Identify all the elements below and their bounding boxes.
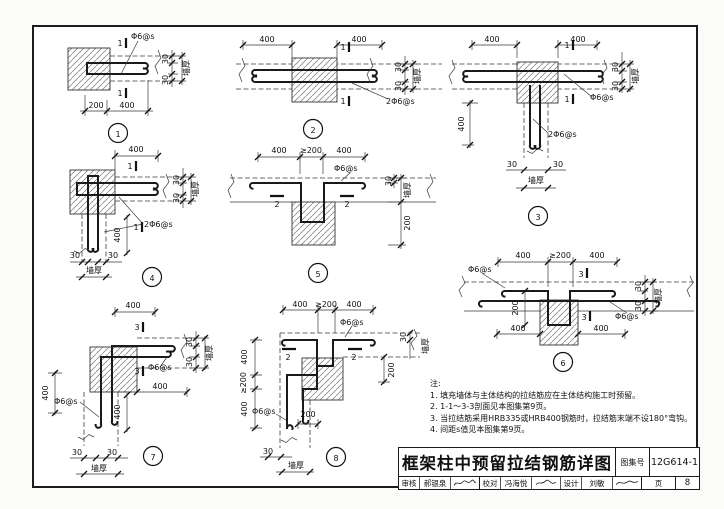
column-hatch	[90, 347, 137, 392]
reviewer-signature	[451, 477, 480, 489]
note-line: 4. 间距s值见本图集第9页。	[430, 424, 698, 436]
detail-6-drawing: 400 ≥200 400 Φ6@s Φ6@s 200 400 400 3 3 3…	[458, 248, 702, 372]
wall-thickness-label: 墙厚	[653, 288, 663, 304]
atlas-number-value: 12G614-1	[650, 448, 699, 476]
title-block-row2: 审核 郝银泉 校对 冯海悦 设计 刘敏 页 8	[399, 477, 699, 489]
dim-label-30: 30	[172, 193, 181, 203]
rebar-spec-label: Φ6@s	[340, 318, 364, 327]
section-cut-line	[587, 268, 590, 321]
detail-number: 8	[333, 454, 338, 463]
dim-label-400: 400	[593, 324, 608, 333]
column-hatch	[292, 202, 335, 245]
detail-5-drawing: 400 ≥200 400 Φ6@s 2 2 30 墙厚 200 5	[226, 146, 440, 290]
wall-thickness-label: 墙厚	[412, 68, 422, 84]
drawing-sheet: 1 1 Φ6@s 200 400 30 墙厚 30 1 400 400 1 1 …	[0, 0, 724, 509]
dim-label-30: 30	[611, 81, 620, 91]
dim-label-400: 400	[152, 382, 167, 391]
wall-thickness-label: 墙厚	[91, 463, 107, 473]
detail-number: 2	[310, 126, 315, 135]
dim-label-ge200: ≥200	[239, 372, 248, 394]
detail-4-drawing: 400 1 1 2Φ6@s 400 30 30 墙厚 30 30 墙厚 4	[36, 146, 238, 298]
dim-label-ge200: ≥200	[315, 300, 337, 309]
signature-scribble	[614, 478, 640, 488]
detail-number: 7	[150, 453, 155, 462]
dim-label-30: 30	[399, 332, 408, 342]
section-mark-label: 1	[564, 95, 569, 104]
dim-label-ge200: ≥200	[549, 251, 571, 260]
detail-3-drawing: 400 400 1 1 Φ6@s 2Φ6@s 400 30 30 墙厚 30 3…	[448, 28, 700, 248]
wall-thickness-label: 墙厚	[204, 345, 214, 361]
section-mark-label: 2	[344, 200, 349, 209]
dim-label-400: 400	[570, 35, 585, 44]
atlas-number-label: 图集号	[616, 448, 650, 476]
section-mark-label: 3	[578, 270, 583, 279]
wall-thickness-label: 墙厚	[630, 68, 640, 84]
section-mark-label: 2	[274, 200, 279, 209]
checker-signature	[532, 477, 561, 489]
dim-label-400: 400	[292, 300, 307, 309]
detail-number: 6	[560, 359, 565, 368]
dim-label-30: 30	[161, 54, 170, 64]
dim-label-30: 30	[263, 447, 273, 456]
designer-name: 刘敏	[582, 477, 613, 489]
wall-thickness-label: 墙厚	[288, 460, 304, 470]
checker-name: 冯海悦	[501, 477, 532, 489]
dim-label-30: 30	[394, 81, 403, 91]
dim-label-200: 200	[300, 410, 315, 419]
wall-thickness-label: 墙厚	[402, 182, 412, 198]
dim-label-400: 400	[113, 404, 122, 419]
section-mark-label: 1	[117, 39, 122, 48]
section-mark-label: 1	[127, 162, 132, 171]
rebar-spec-label: 2Φ6@s	[548, 130, 577, 139]
wall-thickness-label: 墙厚	[420, 338, 430, 354]
dim-label-30: 30	[107, 448, 117, 457]
section-mark-label: 3	[134, 367, 139, 376]
rebar-path	[463, 71, 603, 149]
dim-label-30: 30	[185, 357, 194, 367]
detail-number: 1	[115, 130, 120, 139]
rebar-spec-label: Φ6@s	[252, 407, 276, 416]
note-line: 2. 1-1～3-3剖面见本图集第9页。	[430, 401, 698, 413]
dim-label-ge200: ≥200	[300, 146, 322, 155]
detail-2-drawing: 400 400 1 1 2Φ6@s 30 墙厚 30 2	[233, 28, 445, 156]
rebar-spec-label: 2Φ6@s	[144, 220, 173, 229]
rebar-spec-label: Φ6@s	[334, 164, 358, 173]
rebar-spec-label: Φ6@s	[615, 312, 639, 321]
dim-label-30: 30	[394, 62, 403, 72]
dim-label-30: 30	[172, 175, 181, 185]
note-line: 3. 当拉结筋采用HRB335或HRB400钢筋时，拉结筋末端不设180°弯钩。	[430, 413, 698, 425]
dim-label-400: 400	[271, 146, 286, 155]
wall-thickness-label: 墙厚	[181, 60, 191, 76]
note-line: 1. 填充墙体与主体结构的拉结筋应在主体结构施工时预留。	[430, 390, 698, 402]
rebar-spec-label: Φ6@s	[590, 93, 614, 102]
dim-label-400: 400	[128, 145, 143, 154]
dim-label-200: 200	[88, 101, 103, 110]
dim-label-200: 200	[511, 300, 520, 315]
dim-label-400: 400	[515, 251, 530, 260]
detail-number: 5	[315, 270, 320, 279]
dim-label-400: 400	[484, 35, 499, 44]
detail-number: 3	[535, 213, 540, 222]
dim-label-400: 400	[346, 300, 361, 309]
rebar-spec-label: Φ6@s	[54, 397, 78, 406]
signature-scribble	[452, 478, 478, 488]
column-hatch	[292, 58, 337, 102]
dim-label-400: 400	[259, 35, 274, 44]
section-mark-label: 1	[340, 97, 345, 106]
dim-label-30: 30	[634, 301, 643, 311]
section-mark-label: 1	[564, 41, 569, 50]
sheet-title: 框架柱中预留拉结钢筋详图	[399, 448, 616, 476]
dim-label-400: 400	[240, 349, 249, 364]
page-number: 8	[676, 477, 699, 489]
section-mark-label: 1	[133, 223, 138, 232]
dim-label-400: 400	[119, 101, 134, 110]
dim-label-400: 400	[351, 35, 366, 44]
dim-label-400: 400	[336, 146, 351, 155]
rebar-spec-label: 2Φ6@s	[386, 97, 415, 106]
wall-dash	[280, 333, 420, 448]
dim-label-30: 30	[185, 337, 194, 347]
dim-label-200: 200	[403, 215, 412, 230]
reviewer-name: 郝银泉	[420, 477, 451, 489]
dim-label-30: 30	[161, 75, 170, 85]
detail-1-drawing: 1 1 Φ6@s 200 400 30 墙厚 30 1	[38, 28, 224, 156]
dim-label-30: 30	[70, 251, 80, 260]
dim-label-400: 400	[510, 324, 525, 333]
section-mark-label: 2	[285, 353, 290, 362]
dim-label-30: 30	[611, 62, 620, 72]
signature-scribble	[533, 478, 559, 488]
section-mark-label: 1	[117, 89, 122, 98]
page-label: 页	[642, 477, 676, 489]
section-mark-label: 2	[351, 353, 356, 362]
review-label: 审核	[399, 477, 420, 489]
section-mark-label: 1	[340, 43, 345, 52]
detail-number: 4	[149, 274, 154, 283]
dim-label-30: 30	[384, 176, 393, 186]
dim-label-200: 200	[387, 362, 396, 377]
dim-label-400: 400	[240, 401, 249, 416]
notes-block: 注: 1. 填充墙体与主体结构的拉结筋应在主体结构施工时预留。 2. 1-1～3…	[430, 378, 698, 436]
section-mark-label: 3	[581, 313, 586, 322]
dim-label-400: 400	[41, 385, 50, 400]
wall-thickness-label: 墙厚	[86, 265, 102, 275]
design-label: 设计	[561, 477, 582, 489]
notes-heading: 注:	[430, 378, 698, 390]
dim-label-30: 30	[108, 251, 118, 260]
title-block-row1: 框架柱中预留拉结钢筋详图 图集号 12G614-1	[399, 448, 699, 477]
column-hatch	[540, 300, 578, 345]
check-label: 校对	[480, 477, 501, 489]
dim-label-30: 30	[553, 160, 563, 169]
rebar-spec-label: Φ6@s	[468, 265, 492, 274]
wall-dash	[236, 64, 442, 89]
rebar-spec-label: Φ6@s	[148, 363, 172, 372]
rebar-spec-label: Φ6@s	[131, 32, 155, 41]
column-hatch	[68, 48, 110, 90]
dim-label-400: 400	[113, 227, 122, 242]
designer-signature	[613, 477, 642, 489]
title-block: 框架柱中预留拉结钢筋详图 图集号 12G614-1 审核 郝银泉 校对 冯海悦 …	[398, 447, 700, 490]
dim-label-400: 400	[125, 301, 140, 310]
dim-label-400: 400	[589, 251, 604, 260]
dim-label-400: 400	[457, 116, 466, 131]
detail-7-drawing: 400 3 3 400 Φ6@s Φ6@s 400 400 30 30 墙厚 3…	[36, 300, 246, 482]
column-hatch	[302, 358, 343, 400]
wall-thickness-label: 墙厚	[190, 181, 200, 197]
dim-label-30: 30	[72, 448, 82, 457]
dim-label-30: 30	[634, 281, 643, 291]
wall-thickness-label: 墙厚	[528, 175, 544, 185]
section-mark-label: 3	[134, 323, 139, 332]
dim-label-30: 30	[507, 160, 517, 169]
